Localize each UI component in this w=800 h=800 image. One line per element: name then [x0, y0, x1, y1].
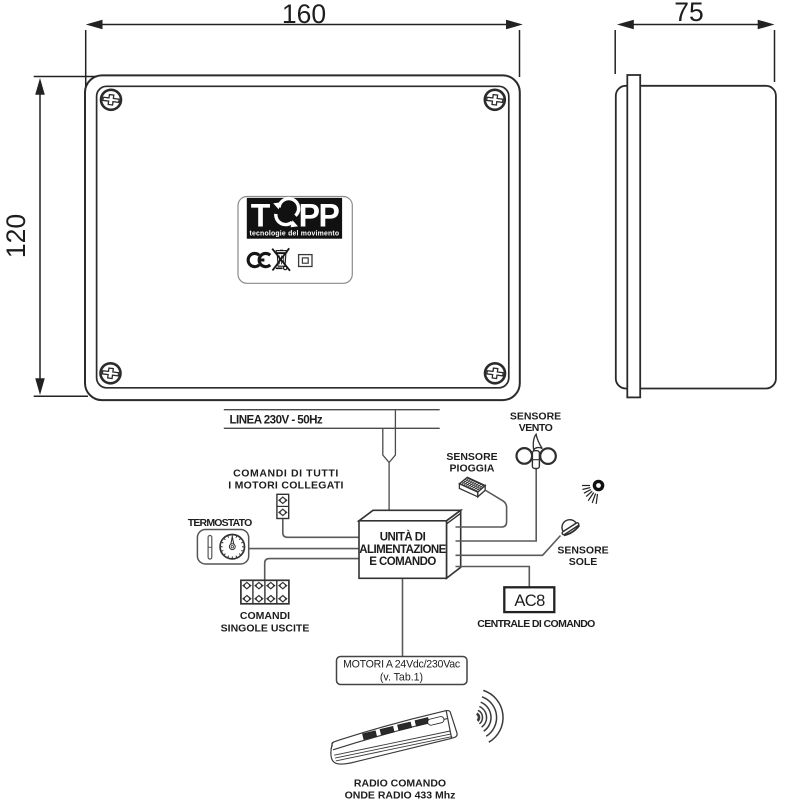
svg-text:160: 160	[282, 0, 326, 29]
svg-text:ONDE RADIO 433 Mhz: ONDE RADIO 433 Mhz	[345, 790, 456, 800]
svg-text:RADIO COMANDO: RADIO COMANDO	[354, 778, 446, 790]
svg-text:SENSORE: SENSORE	[557, 545, 608, 557]
svg-text:I MOTORI COLLEGATI: I MOTORI COLLEGATI	[228, 480, 343, 492]
svg-text:E COMANDO: E COMANDO	[369, 556, 436, 568]
svg-text:TERMOSTATO: TERMOSTATO	[188, 517, 252, 529]
svg-text:SOLE: SOLE	[569, 556, 598, 568]
svg-text:(v. Tab.1): (v. Tab.1)	[380, 672, 423, 684]
svg-text:CENTRALE DI COMANDO: CENTRALE DI COMANDO	[477, 618, 595, 630]
svg-text:75: 75	[674, 0, 703, 27]
svg-text:PP: PP	[299, 198, 340, 234]
svg-text:PIOGGIA: PIOGGIA	[450, 463, 495, 475]
svg-text:LINEA 230V - 50Hz: LINEA 230V - 50Hz	[230, 414, 323, 427]
svg-text:120: 120	[1, 214, 31, 258]
svg-text:T: T	[251, 198, 271, 234]
svg-text:SINGOLE USCITE: SINGOLE USCITE	[221, 623, 310, 635]
svg-text:COMANDI DI TUTTI: COMANDI DI TUTTI	[233, 468, 339, 480]
svg-text:VENTO: VENTO	[519, 422, 553, 434]
svg-text:SENSORE: SENSORE	[510, 411, 561, 423]
svg-text:SENSORE: SENSORE	[446, 451, 497, 463]
svg-text:ALIMENTAZIONE: ALIMENTAZIONE	[359, 544, 446, 556]
svg-text:AC8: AC8	[514, 592, 545, 610]
svg-text:UNITÀ DI: UNITÀ DI	[380, 531, 426, 544]
svg-text:tecnologie del movimento: tecnologie del movimento	[250, 231, 340, 238]
svg-text:MOTORI A 24Vdc/230Vac: MOTORI A 24Vdc/230Vac	[343, 659, 461, 671]
svg-text:COMANDI: COMANDI	[240, 610, 290, 622]
